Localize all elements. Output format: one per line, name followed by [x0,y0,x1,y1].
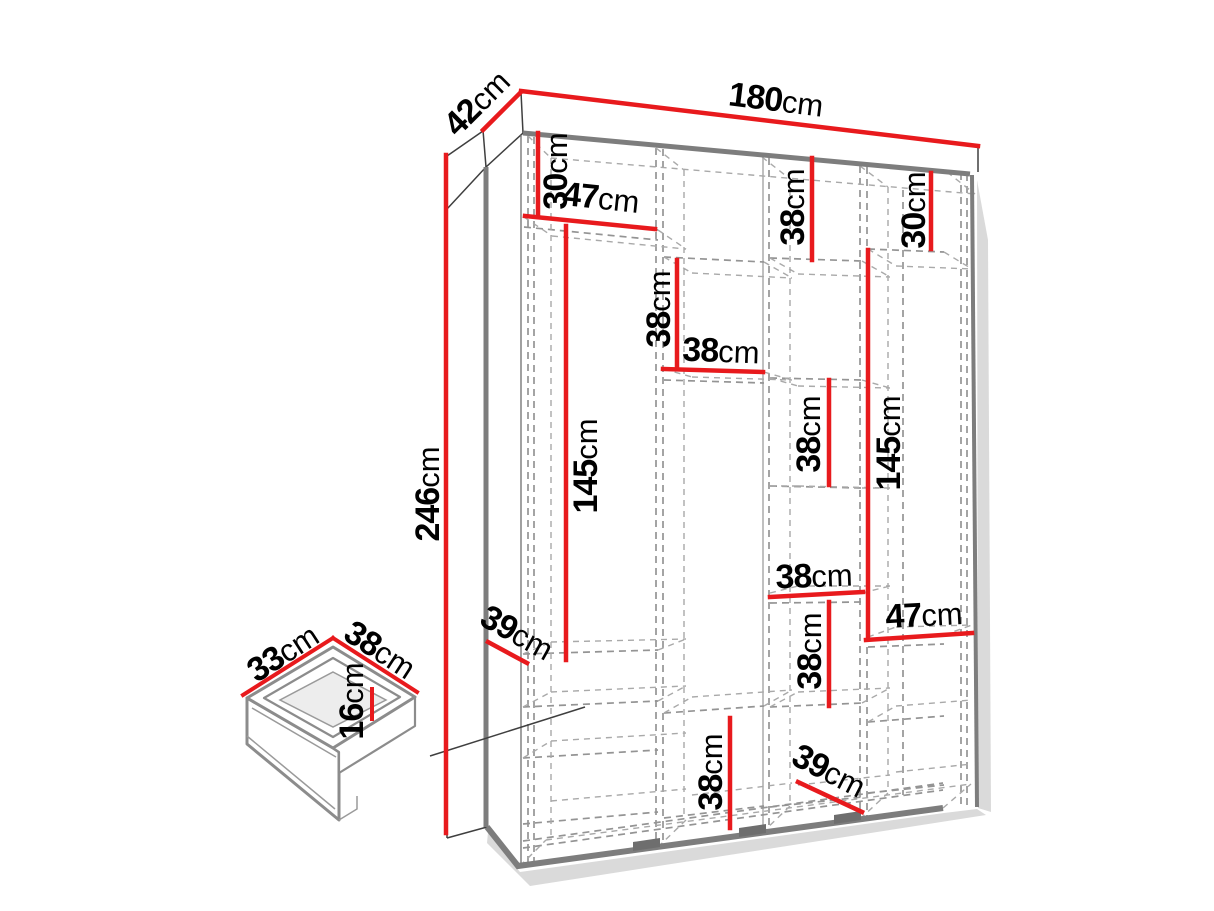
wardrobe-dimension-diagram: 180cm 42cm 246cm 30cm 47cm 145cm 39cm 38… [0,0,1214,911]
dim-label-sec3-width-38: 38cm [775,556,853,597]
dim-label-sec4-width-47: 47cm [884,594,963,636]
dim-label-sec3-top-38: 38cm [774,168,812,245]
dim-label-sec2-width-38: 38cm [682,331,760,372]
drawer-foot-notch [339,796,357,820]
diagram-canvas: 180cm 42cm 246cm 30cm 47cm 145cm 39cm 38… [0,0,1214,911]
dim-label-sec1-hanging-145: 145cm [567,418,605,513]
dim-label-height-246: 246cm [409,446,447,541]
dim-label-sec4-hanging-145: 145cm [870,395,908,490]
dim-label-drawer-height-16: 16cm [333,662,371,739]
dim-label-sec4-top-30: 30cm [895,171,933,248]
dim-label-sec3-mid-38: 38cm [790,395,828,472]
dim-label-sec2-bottom-38: 38cm [692,733,730,810]
dim-label-sec2-upper-38: 38cm [640,270,678,347]
dim-label-sec3-lower-38: 38cm [791,612,829,689]
